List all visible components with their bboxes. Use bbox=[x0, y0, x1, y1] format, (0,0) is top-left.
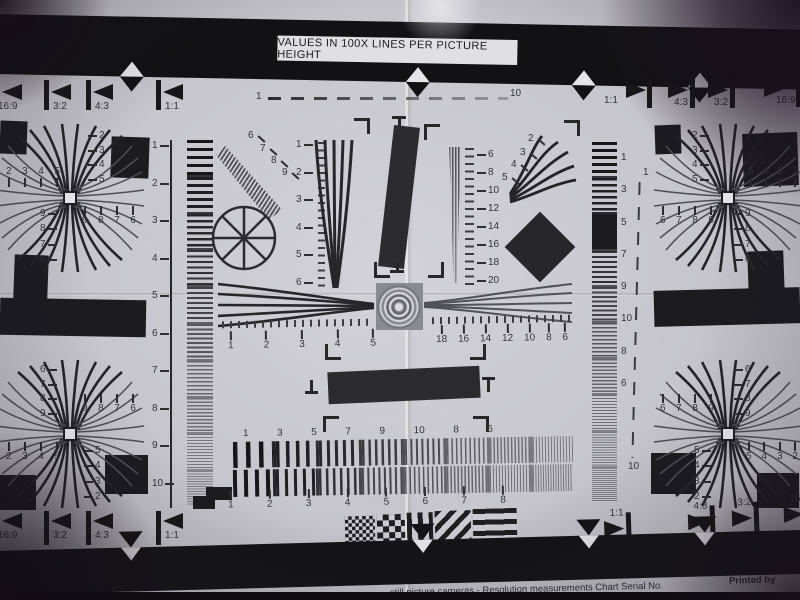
bowtie-black-triangle bbox=[410, 524, 434, 541]
burst-segment bbox=[187, 140, 213, 175]
burst-segment bbox=[592, 466, 617, 502]
cross-scale-label: 9 bbox=[82, 394, 88, 414]
photo-bottom-edge bbox=[0, 592, 800, 600]
diagonal-wedge-label: 7 bbox=[260, 143, 266, 154]
right-ruler-label: 7 bbox=[621, 250, 627, 260]
marker-triangle-icon bbox=[93, 84, 113, 100]
marker-triangle-icon bbox=[2, 513, 22, 529]
fine-wedge-ruler-label: 8 bbox=[477, 168, 494, 178]
marker-label: 16:9 bbox=[789, 494, 800, 505]
sweep-label: 6 bbox=[422, 487, 428, 507]
marker-label: 3:2 bbox=[714, 98, 728, 108]
curved-fan-label: 2 bbox=[528, 133, 534, 144]
left-ruler-label: 7 bbox=[152, 366, 169, 376]
horizontal-ruler-label: 6 bbox=[562, 323, 568, 343]
cross-scale-label: 7 bbox=[734, 380, 751, 390]
fine-wedge-ruler-label: 6 bbox=[477, 150, 494, 160]
vertical-wedge-ruler-label: 1 bbox=[296, 140, 313, 150]
cross-scale-label: 6 bbox=[660, 206, 666, 226]
bowtie-black-triangle bbox=[405, 82, 429, 97]
perp-mark-icon bbox=[305, 391, 318, 394]
cross-scale-label: 3 bbox=[778, 167, 784, 187]
marker-label: 1:1 bbox=[165, 102, 179, 112]
marker-triangle-icon bbox=[732, 510, 753, 527]
cross-scale-label: 8 bbox=[692, 394, 698, 414]
marker-bar bbox=[156, 80, 161, 110]
cross-scale-label: 5 bbox=[694, 446, 711, 456]
sweep-label: 7 bbox=[345, 427, 351, 437]
sweep-label: 4 bbox=[345, 488, 351, 508]
cross-scale-label: 6 bbox=[660, 394, 666, 414]
bowtie-icon bbox=[576, 535, 603, 570]
marker-bar bbox=[730, 78, 735, 108]
burst-segment bbox=[187, 359, 213, 396]
aspect-marker-16x9-bottom-left: 16:9 bbox=[0, 507, 26, 553]
cross-scale-label: 5 bbox=[88, 175, 105, 185]
horizontal-ruler-left: 12345 bbox=[228, 329, 376, 356]
right-dashed-bottom-label: 10 bbox=[628, 462, 639, 472]
left-ruler-label: 6 bbox=[152, 329, 169, 339]
horizontal-ruler-label: 2 bbox=[263, 331, 269, 351]
fine-wedge-ruler-label: 16 bbox=[477, 240, 499, 250]
marker-label: 16:9 bbox=[776, 96, 795, 106]
corner-cross-top-right bbox=[648, 118, 800, 278]
cross-scale-label: 7 bbox=[676, 394, 682, 414]
right-ruler-label: 5 bbox=[621, 218, 627, 228]
marker-bar bbox=[156, 511, 161, 545]
cross-scale-label: 7 bbox=[40, 380, 57, 390]
left-ruler-label: 10 bbox=[152, 479, 174, 489]
diagonal-wedge-label: 9 bbox=[282, 167, 288, 178]
cross-scale-label: 3 bbox=[22, 442, 28, 462]
cross-scale-label: 7 bbox=[40, 240, 57, 250]
bowtie-icon bbox=[404, 66, 431, 98]
marker-bar bbox=[690, 78, 695, 108]
marker-triangle-icon bbox=[668, 82, 688, 98]
marker-label: 4:3 bbox=[95, 531, 109, 541]
cross-scale-label: 6 bbox=[130, 206, 136, 226]
cross-scale-label: 7 bbox=[734, 240, 751, 250]
cross-scale-label: 9 bbox=[40, 409, 57, 419]
cross-scale-label: 3 bbox=[22, 167, 28, 187]
bowtie-black-triangle bbox=[576, 519, 600, 536]
cross-scale-label: 7 bbox=[676, 206, 682, 226]
right-ruler-label: 3 bbox=[621, 185, 627, 195]
cross-scale-label: 4 bbox=[88, 160, 105, 170]
cross-scale: 9876 bbox=[40, 209, 64, 265]
cross-scale-label: 5 bbox=[748, 167, 754, 187]
sweep-label: 3 bbox=[306, 489, 312, 509]
left-ruler-label: 2 bbox=[152, 179, 169, 189]
bowtie-icon bbox=[410, 539, 437, 574]
sweep-label: 5 bbox=[311, 428, 317, 438]
burst-segment bbox=[187, 285, 213, 322]
bowtie-white-triangle bbox=[120, 61, 144, 76]
chart-title: VALUES IN 100X LINES PER PICTURE HEIGHT bbox=[277, 36, 517, 65]
horizontal-ruler-label: 18 bbox=[436, 325, 447, 345]
sweep-segment bbox=[530, 436, 573, 463]
curved-fan bbox=[504, 134, 580, 208]
cross-scale-label: 6 bbox=[40, 255, 57, 265]
cross-scale-label: 9 bbox=[82, 206, 88, 226]
left-ruler-label: 8 bbox=[152, 404, 169, 414]
sweep-label: 9 bbox=[379, 427, 385, 437]
cross-scale: 5432 bbox=[748, 167, 798, 189]
curved-fan-label: 5 bbox=[502, 172, 508, 183]
cross-scale: 2345 bbox=[692, 131, 716, 185]
registration-bracket-icon bbox=[354, 118, 370, 134]
marker-triangle-icon bbox=[51, 513, 71, 529]
cross-scale-label: 9 bbox=[708, 206, 714, 226]
cross-scale-label: 3 bbox=[692, 146, 709, 156]
vertical-wedge-ruler-label: 3 bbox=[296, 195, 313, 205]
cross-scale-label: 3 bbox=[84, 477, 101, 487]
cross-scale-label: 3 bbox=[694, 477, 711, 487]
burst-segment bbox=[592, 249, 617, 285]
cross-scale-label: 5 bbox=[84, 446, 101, 456]
zone-plate bbox=[376, 283, 423, 330]
cross-scale-label: 4 bbox=[38, 167, 44, 187]
cross-scale-label: 5 bbox=[692, 175, 709, 185]
vertical-wedge bbox=[312, 138, 360, 290]
left-ruler-label: 1 bbox=[152, 141, 169, 151]
zone-plate-rings bbox=[376, 283, 423, 330]
marker-triangle-icon bbox=[784, 506, 800, 523]
sweep-label: 6 bbox=[487, 425, 493, 435]
marker-label: 4:3 bbox=[674, 98, 688, 108]
sweep-segment bbox=[233, 441, 273, 468]
cross-scale-label: 2 bbox=[6, 442, 12, 462]
black-beam-horizontal-left bbox=[0, 298, 146, 338]
cross-scale: 9876 bbox=[82, 206, 136, 230]
bowtie-black-triangle bbox=[571, 85, 595, 100]
sweep-segment bbox=[316, 440, 359, 467]
fine-wedge-ruler: 68101214161820 bbox=[477, 150, 503, 286]
slanted-bar-horizontal bbox=[327, 366, 480, 405]
horizontal-ruler-label: 1 bbox=[228, 331, 234, 351]
cross-scale-label: 4 bbox=[761, 442, 767, 462]
bowtie-white-triangle bbox=[572, 70, 596, 85]
sweep-segment bbox=[273, 441, 316, 468]
cross-scale-label: 7 bbox=[114, 206, 120, 226]
right-dashed-top-label: 1 bbox=[643, 168, 649, 178]
cross-scale: 9876 bbox=[734, 209, 758, 265]
cross-scale-label: 6 bbox=[734, 255, 751, 265]
sweep-label: 2 bbox=[267, 490, 273, 510]
marker-bar bbox=[44, 80, 49, 110]
sweep-label: 1 bbox=[243, 429, 249, 439]
marker-label: 16:9 bbox=[0, 102, 17, 112]
sweep-label: 1 bbox=[228, 490, 234, 510]
frame-dashed-line bbox=[268, 97, 508, 100]
marker-label: 3:2 bbox=[53, 102, 67, 112]
marker-triangle-icon bbox=[163, 513, 183, 529]
cross-scale-label: 6 bbox=[130, 394, 136, 414]
cross-scale-label: 5 bbox=[54, 167, 60, 187]
cross-scale-label: 8 bbox=[692, 206, 698, 226]
diagonal-wedge-label: 8 bbox=[271, 155, 277, 166]
marker-bar bbox=[86, 80, 91, 110]
marker-bar bbox=[647, 78, 652, 108]
cross-scale-label: 9 bbox=[40, 209, 57, 219]
cross-scale: 5432 bbox=[694, 446, 718, 502]
bowtie-white-triangle bbox=[121, 547, 141, 561]
marker-triangle-icon bbox=[708, 82, 728, 98]
sweep-label: 3 bbox=[277, 428, 283, 438]
t-mark-icon bbox=[487, 379, 490, 392]
sweep-label: 8 bbox=[453, 425, 459, 435]
burst-segment bbox=[592, 357, 617, 393]
sweep-label: 8 bbox=[500, 486, 506, 506]
cross-scale: 5432 bbox=[84, 446, 108, 502]
curved-fan-label: 4 bbox=[511, 159, 517, 170]
corner-cross-bottom-left bbox=[0, 354, 150, 514]
cross-scale-label: 8 bbox=[734, 224, 751, 234]
left-ruler-label: 5 bbox=[152, 291, 169, 301]
registration-bracket-icon bbox=[428, 262, 444, 278]
cross-scale: 2345 bbox=[88, 131, 112, 185]
cross-scale: 5432 bbox=[746, 442, 798, 468]
aspect-marker-3x2-bottom-left: 3:2 bbox=[44, 507, 90, 553]
burst-segment bbox=[187, 322, 213, 359]
left-ruler-label: 9 bbox=[152, 441, 169, 451]
horizontal-ruler-label: 12 bbox=[502, 324, 513, 344]
left-ruler-label: 4 bbox=[152, 254, 169, 264]
cross-scale-label: 8 bbox=[98, 206, 104, 226]
horizontal-ruler-right: 181614121086 bbox=[436, 323, 568, 349]
cross-scale-label: 4 bbox=[84, 461, 101, 471]
frame-scale-end-label: 10 bbox=[510, 89, 521, 99]
sweep-label: 7 bbox=[461, 486, 467, 506]
marker-label: 1:1 bbox=[165, 531, 179, 541]
bowtie-white-triangle bbox=[579, 535, 599, 549]
bowtie-icon bbox=[118, 547, 145, 582]
marker-triangle-icon bbox=[163, 84, 183, 100]
marker-label: 1:1 bbox=[604, 96, 618, 106]
cross-scale-label: 3 bbox=[88, 146, 105, 156]
cross-scale-label: 5 bbox=[746, 442, 752, 462]
marker-triangle-icon bbox=[626, 82, 646, 98]
cross-scale: 2345 bbox=[6, 442, 60, 468]
horizontal-ruler-label: 5 bbox=[370, 329, 376, 349]
marker-triangle-icon bbox=[2, 84, 22, 100]
burst-segment bbox=[592, 393, 617, 429]
marker-label: 4:3 bbox=[95, 102, 109, 112]
cross-scale-label: 4 bbox=[38, 442, 44, 462]
burst-segment bbox=[592, 142, 617, 176]
sweep-segment bbox=[530, 464, 573, 492]
bowtie-white-triangle bbox=[413, 540, 433, 554]
sweep-segment bbox=[487, 437, 530, 464]
cross-scale-label: 5 bbox=[54, 442, 60, 462]
burst-segment bbox=[592, 285, 617, 321]
sweep-segment bbox=[358, 439, 401, 466]
cross-scale-label: 9 bbox=[734, 409, 751, 419]
burst-segment bbox=[187, 396, 213, 433]
patch-horizontal-bars bbox=[473, 508, 518, 539]
cross-scale-label: 3 bbox=[777, 442, 783, 462]
sweep-label: 10 bbox=[414, 426, 425, 436]
registration-bracket-icon bbox=[424, 124, 440, 140]
marker-label: 16:9 bbox=[0, 531, 17, 541]
marker-label: 1:1 bbox=[610, 508, 624, 518]
corner-cross-bottom-right bbox=[648, 354, 800, 514]
bowtie-black-triangle bbox=[692, 516, 716, 533]
marker-triangle-icon bbox=[93, 513, 113, 529]
right-ruler-label: 8 bbox=[621, 347, 627, 357]
photo-of-resolution-test-chart: VALUES IN 100X LINES PER PICTURE HEIGHT … bbox=[0, 0, 800, 600]
horizontal-ruler-label: 3 bbox=[299, 330, 305, 350]
cross-scale-label: 2 bbox=[88, 131, 105, 141]
cross-scale: 6789 bbox=[660, 394, 714, 420]
cross-scale-label: 2 bbox=[84, 492, 101, 502]
fine-wedge-tickstrip bbox=[465, 148, 474, 288]
right-ruler-label: 6 bbox=[621, 379, 627, 389]
burst-segment bbox=[592, 321, 617, 357]
spoked-circle-icon bbox=[210, 204, 278, 272]
marker-triangle-icon bbox=[764, 81, 784, 97]
bowtie-white-triangle bbox=[406, 67, 430, 82]
cross-scale: 9876 bbox=[82, 394, 136, 420]
cross-scale-label: 4 bbox=[763, 167, 769, 187]
burst-segment bbox=[187, 432, 213, 469]
cross-scale-label: 6 bbox=[734, 365, 751, 375]
cross-scale: 2345 bbox=[6, 167, 60, 189]
vertical-wedge-ruler-label: 5 bbox=[296, 250, 313, 260]
cross-scale: 6789 bbox=[660, 206, 714, 230]
aspect-marker-1x1-top-left: 1:1 bbox=[156, 80, 202, 126]
cross-scale-label: 8 bbox=[40, 224, 57, 234]
cross-scale-label: 2 bbox=[792, 442, 798, 462]
bowtie-icon bbox=[570, 69, 597, 101]
right-ruler-label: 1 bbox=[621, 153, 627, 163]
cross-scale: 6789 bbox=[734, 365, 758, 419]
cross-scale-label: 7 bbox=[114, 394, 120, 414]
curved-fan-label: 3 bbox=[520, 147, 526, 158]
cross-scale-label: 9 bbox=[734, 209, 751, 219]
marker-bar bbox=[44, 511, 49, 545]
bowtie-icon bbox=[692, 532, 719, 567]
cross-scale-label: 4 bbox=[692, 160, 709, 170]
printed-by-text: Printed by bbox=[729, 574, 776, 586]
burst-segment bbox=[592, 176, 617, 212]
horizontal-ruler-label: 16 bbox=[458, 325, 469, 345]
corner-cross-top-left bbox=[0, 118, 150, 278]
marker-bar bbox=[796, 77, 800, 107]
fine-wedge-ruler-label: 10 bbox=[477, 186, 499, 196]
cross-scale-label: 2 bbox=[792, 167, 798, 187]
cross-scale-label: 2 bbox=[692, 131, 709, 141]
title-box: VALUES IN 100X LINES PER PICTURE HEIGHT bbox=[277, 35, 517, 65]
fine-wedge-ruler-label: 18 bbox=[477, 258, 499, 268]
left-ruler-label: 3 bbox=[152, 216, 169, 226]
horizontal-ruler-label: 10 bbox=[524, 323, 535, 343]
right-ruler-label: 9 bbox=[621, 282, 627, 292]
cross-scale-label: 8 bbox=[40, 394, 57, 404]
burst-segment bbox=[592, 212, 617, 248]
horizontal-ruler-label: 14 bbox=[480, 324, 491, 344]
bowtie-white-triangle bbox=[695, 532, 715, 546]
perp-mark-icon bbox=[390, 270, 404, 273]
cross-scale-label: 8 bbox=[98, 394, 104, 414]
cross-scale: 6789 bbox=[40, 365, 64, 419]
cross-scale-label: 8 bbox=[734, 394, 751, 404]
right-ruler-label: 10 bbox=[621, 314, 632, 324]
marker-triangle-icon bbox=[51, 84, 71, 100]
right-burst-column bbox=[592, 142, 617, 502]
marker-label: 4:3 bbox=[693, 502, 707, 512]
sweep-segment bbox=[401, 438, 444, 465]
marker-label: 3:2 bbox=[53, 531, 67, 541]
cross-scale-label: 4 bbox=[694, 461, 711, 471]
left-burst-column bbox=[187, 140, 213, 506]
sweep-label: 5 bbox=[383, 488, 389, 508]
cross-scale-label: 9 bbox=[708, 394, 714, 414]
vertical-wedge-ruler-label: 4 bbox=[296, 223, 313, 233]
diagonal-wedge-label: 6 bbox=[248, 130, 254, 141]
horizontal-ruler-label: 8 bbox=[546, 323, 552, 343]
burst-segment bbox=[592, 430, 617, 466]
cross-scale-label: 6 bbox=[40, 365, 57, 375]
sweep-segment bbox=[444, 438, 487, 465]
aspect-marker-1x1-top-right: 1:1 bbox=[602, 78, 648, 124]
marker-bar bbox=[86, 511, 91, 545]
aspect-marker-16x9-top-right: 16:9 bbox=[760, 77, 800, 123]
fine-wedge-ruler-label: 12 bbox=[477, 204, 499, 214]
horizontal-ruler-label: 4 bbox=[335, 329, 341, 349]
left-ruler: 12345678910 bbox=[152, 141, 182, 489]
vertical-wedge-ruler-label: 2 bbox=[296, 168, 313, 178]
cross-scale-label: 2 bbox=[6, 167, 12, 187]
bowtie-black-triangle bbox=[119, 531, 143, 548]
fine-wedge-ruler-label: 14 bbox=[477, 222, 499, 232]
frame-scale-start-label: 1 bbox=[256, 92, 262, 102]
marker-label: 3:2 bbox=[737, 498, 751, 508]
